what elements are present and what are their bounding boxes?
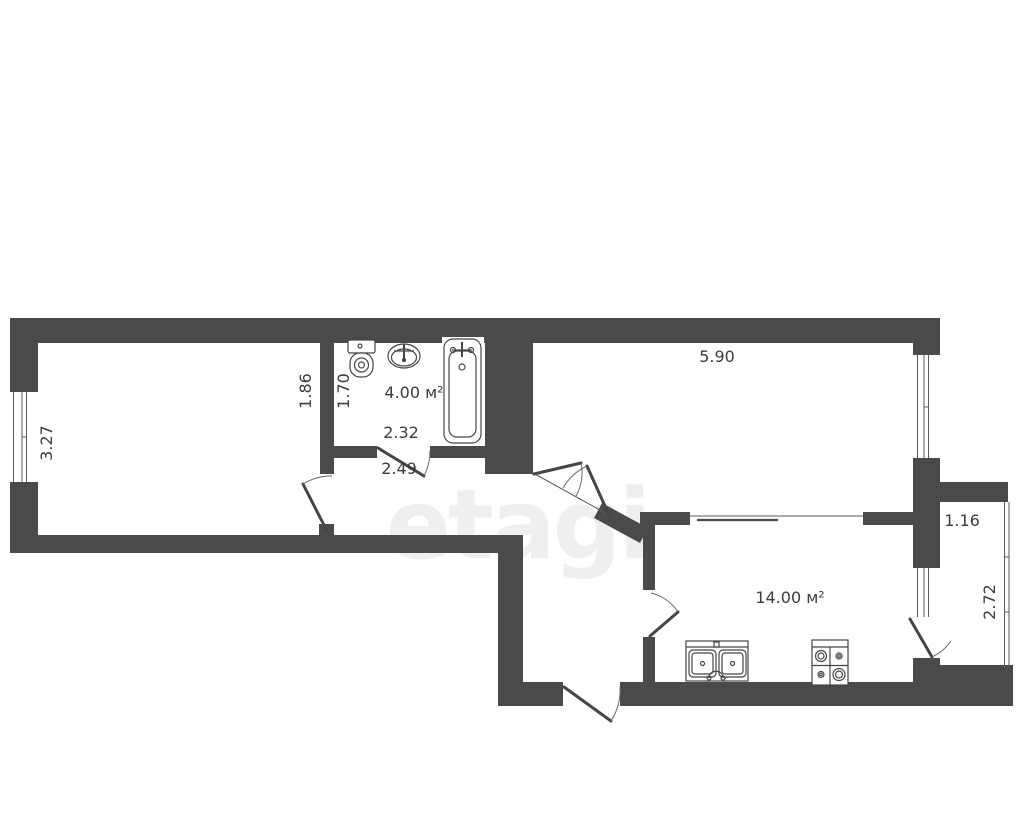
floor-plan: etagi — [0, 0, 1024, 819]
wall — [498, 535, 523, 706]
wall — [10, 535, 523, 553]
dimension-label-balcony-width: 1.16 — [944, 511, 980, 530]
washbasin-icon — [388, 344, 420, 368]
dimension-label-left-of-bathroom: 1.86 — [296, 373, 315, 409]
stove-icon — [812, 640, 848, 685]
wall-balcony-top — [913, 482, 1008, 502]
dimension-label-left-room-height: 3.27 — [37, 425, 56, 461]
dimension-label-bathroom-width: 1.70 — [334, 373, 353, 409]
kitchen-sink-icon — [686, 641, 748, 681]
area-label-kitchen: 14.00 м² — [755, 588, 824, 607]
dimension-label-balcony-height: 2.72 — [980, 584, 999, 620]
window — [913, 355, 940, 458]
wall — [320, 343, 334, 474]
wall — [485, 343, 533, 474]
bathtub-icon — [442, 337, 484, 445]
wall — [913, 343, 940, 355]
area-label-bathroom: 4.00 м² — [384, 383, 443, 402]
wall — [10, 318, 38, 392]
dimension-label-hallway-length: 2.49 — [381, 459, 417, 478]
wall — [430, 446, 485, 458]
window — [10, 392, 38, 482]
wall — [334, 446, 377, 458]
wall — [643, 523, 655, 590]
dimension-label-bathroom-length: 2.32 — [383, 423, 419, 442]
wall — [863, 512, 917, 525]
wall — [913, 458, 940, 568]
wall — [643, 637, 655, 683]
toilet-icon — [348, 340, 375, 377]
window — [913, 568, 940, 617]
dimension-label-right-room-width: 5.90 — [699, 347, 735, 366]
